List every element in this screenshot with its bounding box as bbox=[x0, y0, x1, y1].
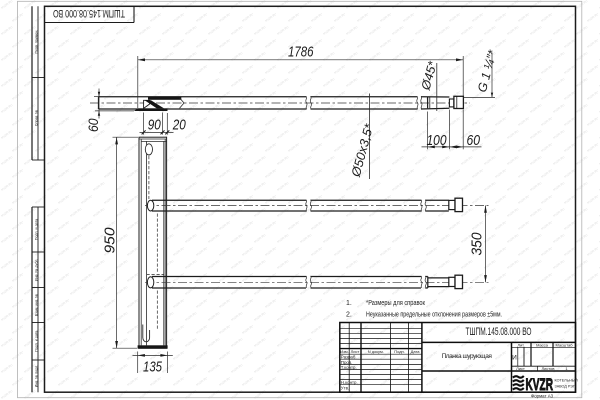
svg-text:*Размеры для справок: *Размеры для справок bbox=[366, 300, 426, 307]
svg-text:ТШПМ.145.08.000 ВО: ТШПМ.145.08.000 ВО bbox=[53, 7, 125, 19]
svg-text:Утв.: Утв. bbox=[341, 385, 349, 390]
svg-text:Н.контр.: Н.контр. bbox=[341, 380, 358, 385]
svg-text:2.: 2. bbox=[346, 311, 352, 318]
svg-text:И: И bbox=[512, 354, 517, 361]
svg-text:Инв. № дубл.: Инв. № дубл. bbox=[34, 259, 38, 281]
svg-text:1.: 1. bbox=[346, 300, 352, 307]
svg-text:Перв. примен.: Перв. примен. bbox=[34, 30, 38, 54]
svg-text:Дата: Дата bbox=[411, 349, 421, 354]
svg-text:Масса: Масса bbox=[536, 342, 549, 347]
svg-text:ЗАВОД РЭП: ЗАВОД РЭП bbox=[555, 385, 576, 389]
svg-text:N докум.: N докум. bbox=[368, 349, 384, 354]
svg-text:950: 950 bbox=[102, 227, 119, 254]
svg-text:Масштаб: Масштаб bbox=[555, 342, 573, 347]
svg-text:Т.контр.: Т.контр. bbox=[341, 365, 357, 370]
svg-text:60: 60 bbox=[85, 118, 101, 132]
svg-text:Подп.: Подп. bbox=[394, 349, 405, 354]
svg-text:KVZR: KVZR bbox=[526, 375, 554, 394]
svg-text:Листов: Листов bbox=[542, 366, 555, 371]
svg-text:1786: 1786 bbox=[288, 44, 314, 61]
svg-text:60: 60 bbox=[467, 132, 481, 149]
svg-text:Взам. инв. №: Взам. инв. № bbox=[34, 294, 38, 316]
svg-text:Лист: Лист bbox=[351, 349, 360, 354]
svg-text:Неуказанные предельные отклоне: Неуказанные предельные отклонения размер… bbox=[366, 311, 502, 318]
svg-text:ТШПМ.145.08.000 ВО: ТШПМ.145.08.000 ВО bbox=[466, 326, 532, 338]
svg-text:Лит.: Лит. bbox=[517, 342, 524, 347]
svg-text:20: 20 bbox=[172, 116, 186, 133]
svg-text:Лист: Лист bbox=[516, 366, 525, 371]
svg-text:90: 90 bbox=[148, 116, 162, 133]
svg-text:Планка шурующая: Планка шурующая bbox=[442, 353, 493, 360]
svg-text:135: 135 bbox=[143, 358, 162, 375]
svg-text:Справ. №: Справ. № bbox=[34, 110, 38, 126]
svg-text:Формат А3: Формат А3 bbox=[531, 394, 554, 399]
svg-text:Инв. № подл.: Инв. № подл. bbox=[34, 365, 38, 387]
svg-text:Подп. и дата: Подп. и дата bbox=[34, 219, 38, 240]
svg-text:Изм.: Изм. bbox=[340, 349, 349, 354]
svg-text:350: 350 bbox=[469, 232, 486, 256]
svg-text:100: 100 bbox=[427, 132, 448, 149]
svg-text:Подп. и дата: Подп. и дата bbox=[34, 331, 38, 352]
svg-text:КОТЕЛЬНЫЙ: КОТЕЛЬНЫЙ bbox=[555, 379, 578, 383]
